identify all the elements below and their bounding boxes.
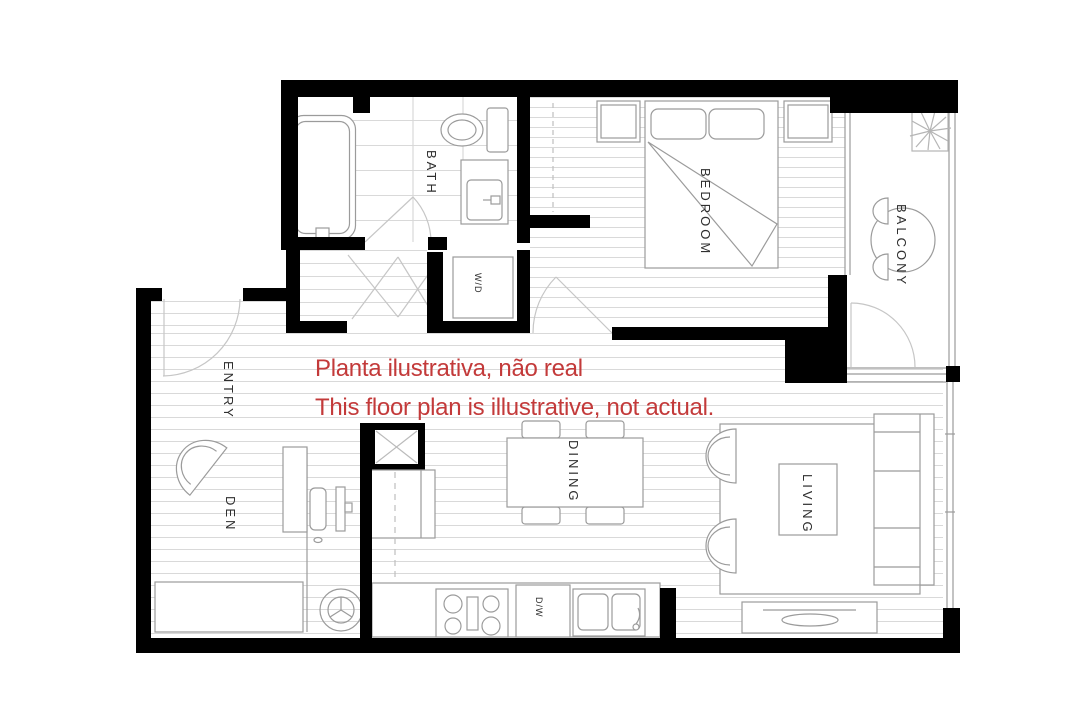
wall-bedroom-bottom (612, 327, 790, 340)
sofa-icon (874, 414, 934, 585)
wall-kitchen-stub (660, 588, 676, 640)
balcony-door (851, 303, 915, 367)
room-label-bath: BATH (424, 150, 439, 196)
room-label-dining: DINING (566, 440, 581, 504)
den-armchair-icon (164, 428, 227, 496)
nightstand-left-icon (597, 101, 640, 142)
wall-hall-stub (530, 215, 590, 228)
room-label-balcony: BALCONY (894, 204, 909, 287)
toilet-icon (441, 108, 508, 152)
wall-bath-right (517, 95, 530, 243)
disclaimer-line-2: This floor plan is illustrative, not act… (315, 394, 714, 422)
wall-bath-door-stub (428, 237, 447, 250)
wall-balcony-post (946, 366, 960, 382)
stove-icon (436, 589, 508, 637)
bathroom-sink-icon (461, 160, 508, 224)
living-window (945, 382, 955, 608)
wall-vestibule-bottom (286, 321, 347, 333)
wall-den-kitchen (360, 423, 372, 652)
nightstand-right-icon (784, 101, 832, 142)
wall-entry-top (243, 288, 290, 301)
bedroom-door (533, 277, 612, 333)
den-rug-icon (155, 582, 303, 632)
bathtub-icon (290, 116, 356, 245)
room-label-bedroom: BEDROOM (698, 168, 713, 256)
fan-symbol-icon (320, 589, 362, 631)
wall-top-right (830, 80, 958, 113)
appliance-label-washer-dryer: W/D (473, 273, 483, 294)
wall-bedroom-block (785, 327, 847, 383)
wall-bath-top-stub (353, 80, 370, 113)
disclaimer-line-1: Planta ilustrativa, não real (315, 355, 583, 383)
wall-corner-bottom-right (943, 608, 960, 653)
wall-left (136, 288, 151, 652)
bath-door (365, 197, 431, 242)
plant-icon (910, 111, 951, 151)
bedroom-window (845, 113, 850, 275)
wall-wd-bottom (427, 321, 530, 333)
floor-plan: BATH W/D BEDROOM BALCONY ENTRY DEN DININ… (0, 0, 1080, 720)
wall-bedroom-right-bar (828, 275, 847, 329)
kitchen-sink-icon (573, 589, 645, 636)
washer-dryer-icon (453, 257, 513, 318)
room-label-entry: ENTRY (221, 361, 236, 420)
room-label-living: LIVING (800, 474, 815, 535)
fridge-icon (371, 470, 435, 538)
wall-bottom (136, 638, 960, 653)
wall-bath-left (281, 95, 298, 250)
appliance-label-dishwasher: D/W (534, 597, 544, 618)
shaft-column-icon (372, 427, 422, 468)
tv-console-icon (742, 602, 877, 633)
room-label-den: DEN (223, 496, 238, 532)
